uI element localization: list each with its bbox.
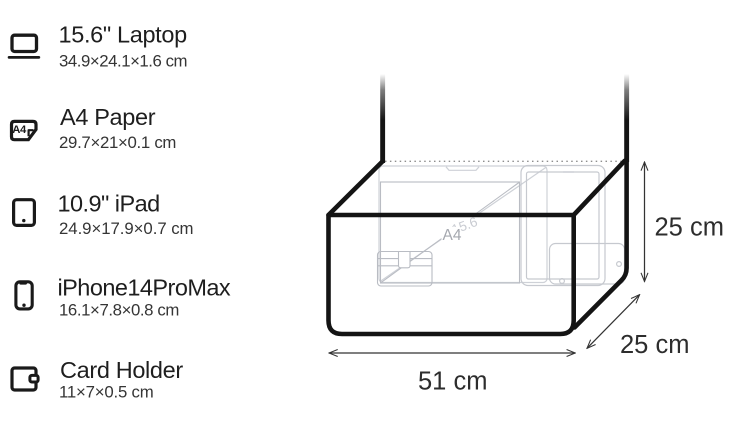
svg-text:51 cm: 51 cm bbox=[418, 368, 487, 396]
svg-text:11×7×0.5 cm: 11×7×0.5 cm bbox=[59, 383, 154, 402]
svg-text:34.9×24.1×1.6 cm: 34.9×24.1×1.6 cm bbox=[59, 52, 187, 71]
svg-text:24.9×17.9×0.7 cm: 24.9×17.9×0.7 cm bbox=[59, 219, 193, 238]
svg-text:A4 Paper: A4 Paper bbox=[60, 104, 156, 130]
svg-text:Card Holder: Card Holder bbox=[60, 357, 183, 383]
svg-text:29.7×21×0.1 cm: 29.7×21×0.1 cm bbox=[59, 133, 176, 152]
svg-text:15.6" Laptop: 15.6" Laptop bbox=[59, 21, 188, 47]
svg-text:iPhone14ProMax: iPhone14ProMax bbox=[58, 275, 231, 301]
svg-text:A4: A4 bbox=[443, 227, 462, 244]
svg-text:16.1×7.8×0.8 cm: 16.1×7.8×0.8 cm bbox=[59, 301, 179, 320]
svg-text:A4: A4 bbox=[12, 124, 27, 136]
svg-text:25 cm: 25 cm bbox=[620, 331, 689, 359]
svg-text:25 cm: 25 cm bbox=[655, 213, 724, 241]
svg-text:10.9" iPad: 10.9" iPad bbox=[58, 191, 160, 217]
